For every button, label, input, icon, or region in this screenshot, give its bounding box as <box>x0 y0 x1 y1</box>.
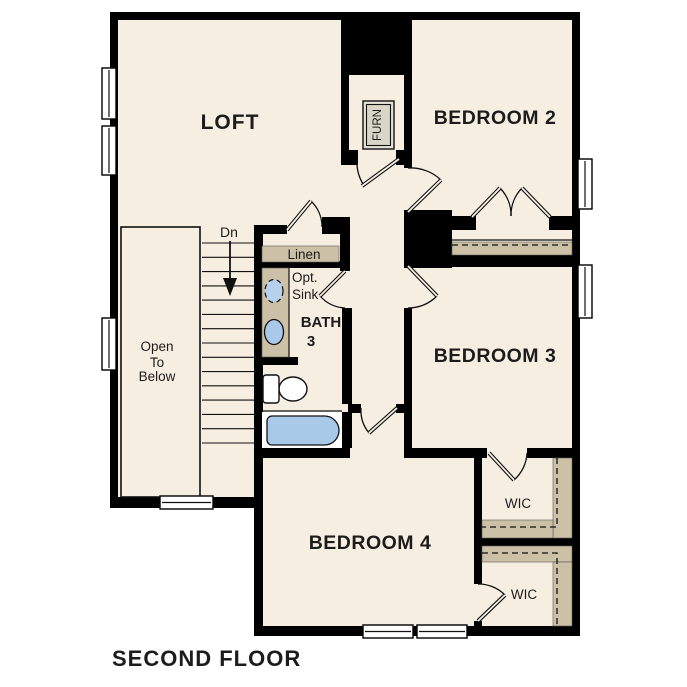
wic-lower-shelf-top <box>482 546 572 562</box>
optional-sink-label-line2: Sink <box>292 287 319 302</box>
open-to-below-label-line1: Open <box>140 339 173 354</box>
chase <box>341 12 412 75</box>
open-to-below-label-line2: To <box>150 355 164 370</box>
linen-label: Linen <box>287 247 320 262</box>
bedroom4-label: BEDROOM 4 <box>309 532 432 554</box>
bedroom3-label: BEDROOM 3 <box>434 345 557 367</box>
bedroom2-window <box>578 159 592 209</box>
optional-sink <box>265 280 283 303</box>
bath-number-label: 3 <box>307 333 315 350</box>
bedroom2-label: BEDROOM 2 <box>434 107 557 129</box>
toilet-tank <box>263 375 279 403</box>
bedroom3-window <box>578 265 592 318</box>
wic-lower-shelf-right <box>553 562 572 626</box>
floor-plan-drawing: LOFT BEDROOM 2 BEDROOM 3 BEDROOM 4 BATH … <box>0 0 687 687</box>
wic-lower-label: WIC <box>511 587 537 602</box>
floor-plan-page: LOFT BEDROOM 2 BEDROOM 3 BEDROOM 4 BATH … <box>0 0 687 687</box>
wic-upper-shelf-bottom <box>482 520 553 538</box>
open-below-window <box>102 318 116 370</box>
stairs-down-label: Dn <box>220 224 238 240</box>
bathtub <box>267 416 339 445</box>
loft-window-lower <box>102 126 116 175</box>
loft-label: LOFT <box>201 111 260 134</box>
bedroom4-window-left <box>363 625 413 638</box>
furnace-label: FURN <box>372 109 384 141</box>
sink <box>265 320 284 345</box>
bedroom2-closet-shelf <box>452 242 572 255</box>
bedroom4-window-right <box>417 625 467 638</box>
page-title: SECOND FLOOR <box>112 646 301 671</box>
loft-window-upper <box>102 68 116 119</box>
optional-sink-label-line1: Opt. <box>292 270 318 285</box>
wic-upper-shelf-right <box>553 458 572 538</box>
open-to-below-label-line3: Below <box>139 369 176 384</box>
open-below-bottom-window <box>160 496 213 509</box>
bath-label: BATH <box>301 314 342 331</box>
wic-upper-label: WIC <box>505 496 531 511</box>
toilet-bowl <box>279 377 307 401</box>
